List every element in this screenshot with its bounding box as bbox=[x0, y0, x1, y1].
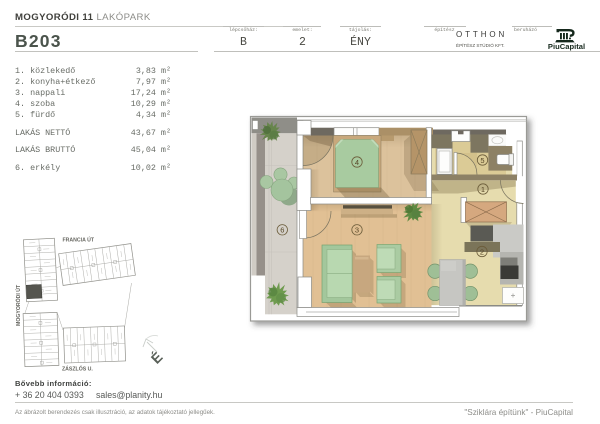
svg-text:3: 3 bbox=[355, 226, 359, 235]
svg-text:6: 6 bbox=[280, 226, 284, 235]
svg-text:1: 1 bbox=[481, 185, 485, 194]
svg-text:ZÁSZLÓS U.: ZÁSZLÓS U. bbox=[62, 365, 93, 373]
svg-text:FRANCIA ÚT: FRANCIA ÚT bbox=[63, 237, 95, 244]
svg-text:5: 5 bbox=[480, 156, 484, 165]
svg-text:4: 4 bbox=[355, 158, 359, 167]
svg-text:MOGYORÓDI ÚT: MOGYORÓDI ÚT bbox=[14, 284, 22, 326]
svg-text:2: 2 bbox=[480, 247, 484, 256]
svg-text:É: É bbox=[148, 349, 166, 367]
